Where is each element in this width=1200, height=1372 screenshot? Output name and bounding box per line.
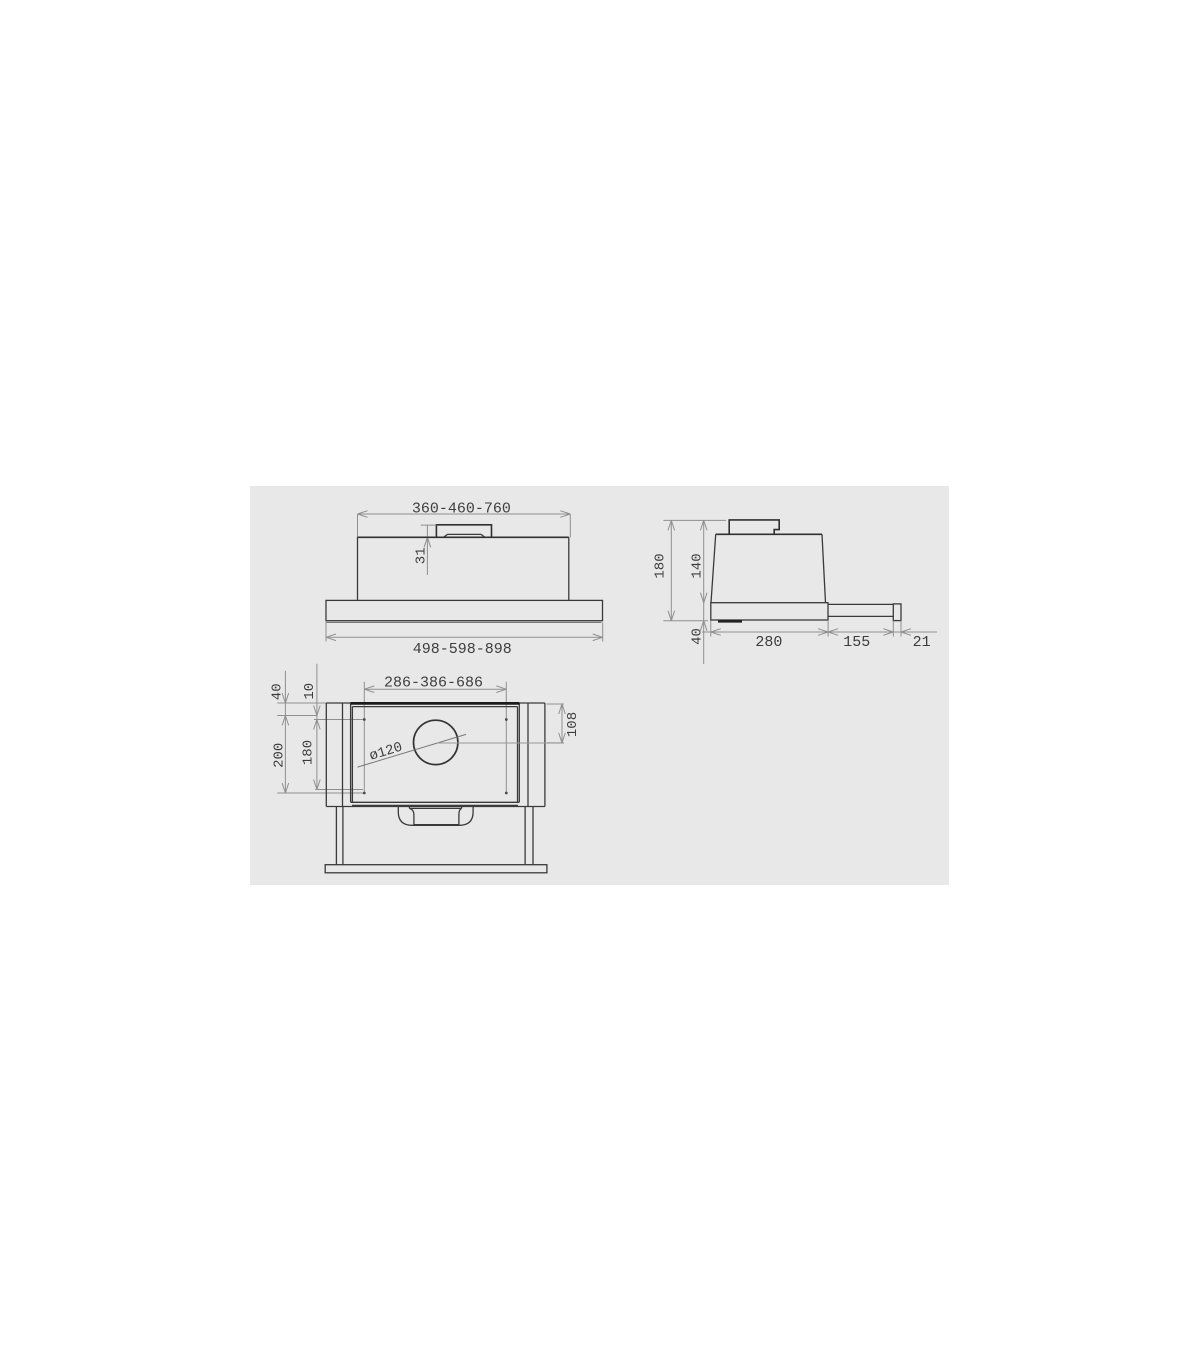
svg-text:180: 180 xyxy=(653,553,669,578)
svg-text:140: 140 xyxy=(689,553,705,578)
svg-text:286-386-686: 286-386-686 xyxy=(384,674,483,691)
svg-text:360-460-760: 360-460-760 xyxy=(412,501,511,518)
svg-text:180: 180 xyxy=(300,740,316,765)
svg-text:31: 31 xyxy=(413,547,429,564)
svg-text:200: 200 xyxy=(271,743,287,768)
svg-text:498-598-898: 498-598-898 xyxy=(413,641,512,658)
svg-text:155: 155 xyxy=(843,634,870,651)
svg-text:280: 280 xyxy=(755,634,782,651)
svg-text:40: 40 xyxy=(270,683,286,700)
svg-text:10: 10 xyxy=(302,683,318,700)
svg-text:108: 108 xyxy=(565,712,581,737)
svg-text:40: 40 xyxy=(690,628,706,645)
svg-text:21: 21 xyxy=(913,634,931,651)
